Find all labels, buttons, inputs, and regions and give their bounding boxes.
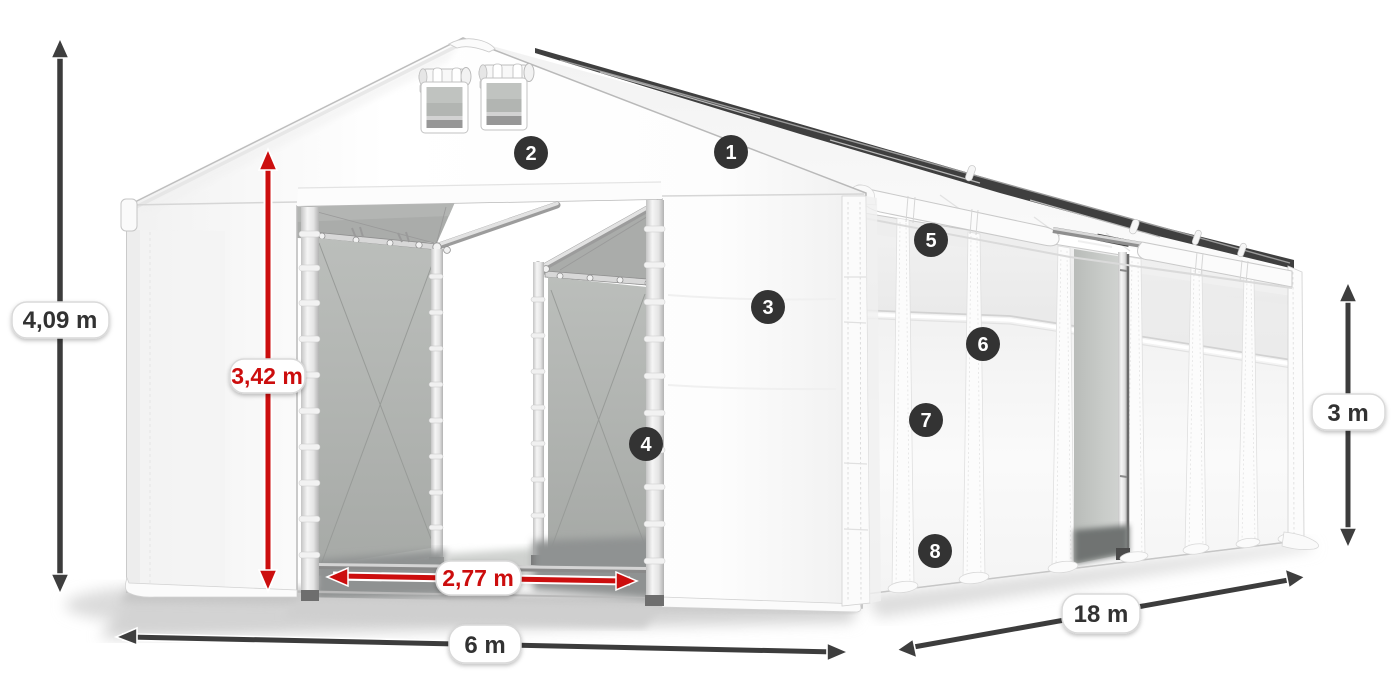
svg-text:5: 5 <box>925 230 936 252</box>
svg-text:6: 6 <box>977 334 988 356</box>
svg-text:1: 1 <box>725 142 736 164</box>
svg-text:3: 3 <box>762 297 773 319</box>
svg-text:2,77 m: 2,77 m <box>442 565 514 591</box>
svg-text:4: 4 <box>640 434 652 456</box>
svg-text:6 m: 6 m <box>464 632 505 659</box>
svg-text:18 m: 18 m <box>1074 601 1129 628</box>
svg-text:8: 8 <box>929 541 940 563</box>
svg-text:3,42 m: 3,42 m <box>231 363 303 389</box>
svg-text:2: 2 <box>525 143 536 165</box>
svg-text:7: 7 <box>920 410 931 432</box>
svg-text:3 m: 3 m <box>1327 400 1368 427</box>
svg-text:4,09 m: 4,09 m <box>23 307 98 334</box>
